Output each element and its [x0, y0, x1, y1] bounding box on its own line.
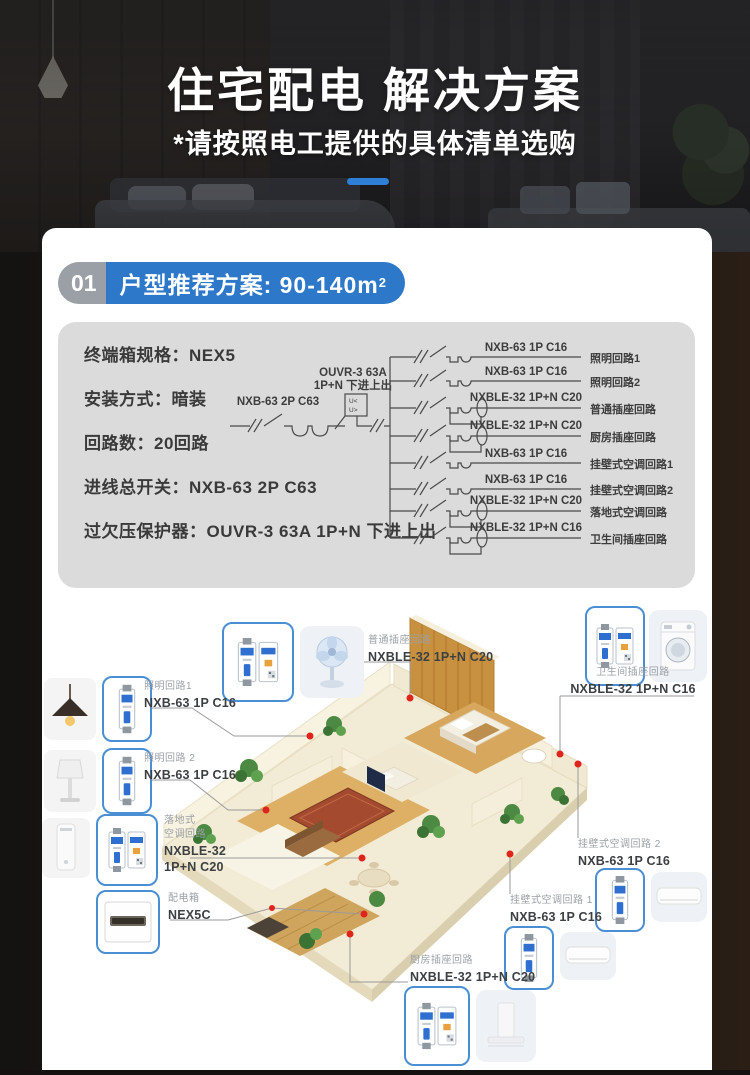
callout-model: NXBLE-32 1P+N C20 — [410, 970, 535, 984]
distribution-box-card — [96, 890, 160, 954]
mcb-breaker-icon — [609, 876, 631, 924]
floor-ac-icon — [53, 822, 79, 874]
pendant-lamp-icon — [50, 684, 90, 734]
callout-floor-ac: 落地式 空调回路 NXBLE-32 1P+N C20 — [164, 814, 226, 874]
spec-item: 终端箱规格：NEX5 — [84, 346, 695, 390]
spec-item: 进线总开关：NXB-63 2P C63 — [84, 478, 695, 522]
range-hood-card — [476, 990, 536, 1062]
spec-item: 回路数：20回路 — [84, 434, 695, 478]
callout-bathroom: 卫生间插座回路 NXBLE-32 1P+N C16 — [558, 666, 708, 696]
breaker-2p-card — [404, 986, 470, 1066]
pendant-lamp-card — [44, 678, 96, 740]
wall-ac-icon — [565, 945, 611, 967]
callout-name: 厨房插座回路 — [410, 954, 535, 968]
washing-machine-icon — [658, 620, 698, 672]
callout-name: 照明回路 2 — [144, 752, 236, 766]
wall-ac-card — [651, 872, 707, 922]
callout-name: 空调回路 — [164, 828, 226, 842]
wall-ac-card — [560, 932, 616, 980]
callout-name: 落地式 — [164, 814, 226, 828]
section-number: 01 — [58, 262, 106, 304]
rcbo-breaker-icon — [236, 638, 280, 686]
callout-lighting2: 照明回路 2 NXB-63 1P C16 — [144, 752, 236, 782]
spec-panel: 终端箱规格：NEX5 安装方式：暗装 回路数：20回路 进线总开关：NXB-63… — [58, 322, 695, 588]
blue-dash-divider — [347, 178, 389, 185]
section-header-pill: 01 户型推荐方案: 90-140m2 — [58, 262, 405, 304]
breaker-2p-card — [96, 814, 158, 886]
fan-icon — [310, 634, 354, 690]
callout-name: 普通插座回路 — [368, 634, 493, 648]
callout-kitchen: 厨房插座回路 NXBLE-32 1P+N C20 — [410, 954, 535, 984]
callout-model: NXBLE-32 1P+N C16 — [558, 682, 708, 696]
callout-model: 1P+N C20 — [164, 860, 226, 874]
callout-name: 挂壁式空调回路 2 — [578, 838, 670, 852]
rcbo-breaker-icon — [595, 622, 635, 670]
table-lamp-icon — [52, 756, 88, 806]
hero-photo: 住宅配电 解决方案 *请按照电工提供的具体清单选购 — [0, 0, 750, 252]
callout-wall-ac2: 挂壁式空调回路 2 NXB-63 1P C16 — [578, 838, 670, 868]
callout-name: 挂壁式空调回路 1 — [510, 894, 602, 908]
rcbo-breaker-icon — [416, 1002, 458, 1050]
callout-dist-box: 配电箱 NEX5C — [168, 892, 211, 922]
callout-wall-ac1: 挂壁式空调回路 1 NXB-63 1P C16 — [510, 894, 602, 924]
callout-model: NEX5C — [168, 908, 211, 922]
section-title-text: 户型推荐方案: 90-140m — [120, 266, 379, 300]
callout-name: 卫生间插座回路 — [558, 666, 708, 680]
range-hood-icon — [484, 999, 528, 1053]
spec-list: 终端箱规格：NEX5 安装方式：暗装 回路数：20回路 进线总开关：NXB-63… — [58, 322, 695, 566]
fan-card — [300, 626, 364, 698]
callout-socket-general: 普通插座回路 NXBLE-32 1P+N C20 — [368, 634, 493, 664]
callout-lighting1: 照明回路1 NXB-63 1P C16 — [144, 680, 236, 710]
callout-model: NXB-63 1P C16 — [578, 854, 670, 868]
callout-model: NXB-63 1P C16 — [144, 768, 236, 782]
callout-model: NXB-63 1P C16 — [510, 910, 602, 924]
breaker-1p-card — [595, 868, 645, 932]
table-lamp-card — [44, 750, 96, 812]
callout-model: NXBLE-32 1P+N C20 — [368, 650, 493, 664]
mcb-breaker-icon — [116, 684, 138, 734]
callout-name: 配电箱 — [168, 892, 211, 906]
callout-name: 照明回路1 — [144, 680, 236, 694]
rcbo-breaker-icon — [107, 827, 147, 873]
page-title: 住宅配电 解决方案 — [0, 52, 750, 121]
distribution-box-icon — [104, 900, 152, 944]
spec-item: 过欠压保护器：OUVR-3 63A 1P+N 下进上出 — [84, 522, 695, 566]
floor-ac-card — [42, 818, 90, 878]
floorplan-section: 普通插座回路 NXBLE-32 1P+N C20 — [42, 596, 712, 1071]
callout-model: NXB-63 1P C16 — [144, 696, 236, 710]
section-title: 户型推荐方案: 90-140m2 — [106, 262, 405, 304]
spec-item: 安装方式：暗装 — [84, 390, 695, 434]
content-card: 01 户型推荐方案: 90-140m2 终端箱规格：NEX5 安装方式：暗装 回… — [42, 228, 712, 1071]
mcb-breaker-icon — [116, 756, 138, 806]
wall-ac-icon — [656, 886, 702, 908]
callout-model: NXBLE-32 — [164, 844, 226, 858]
bottom-divider — [0, 1070, 750, 1075]
page-subtitle: *请按照电工提供的具体清单选购 — [0, 122, 750, 161]
